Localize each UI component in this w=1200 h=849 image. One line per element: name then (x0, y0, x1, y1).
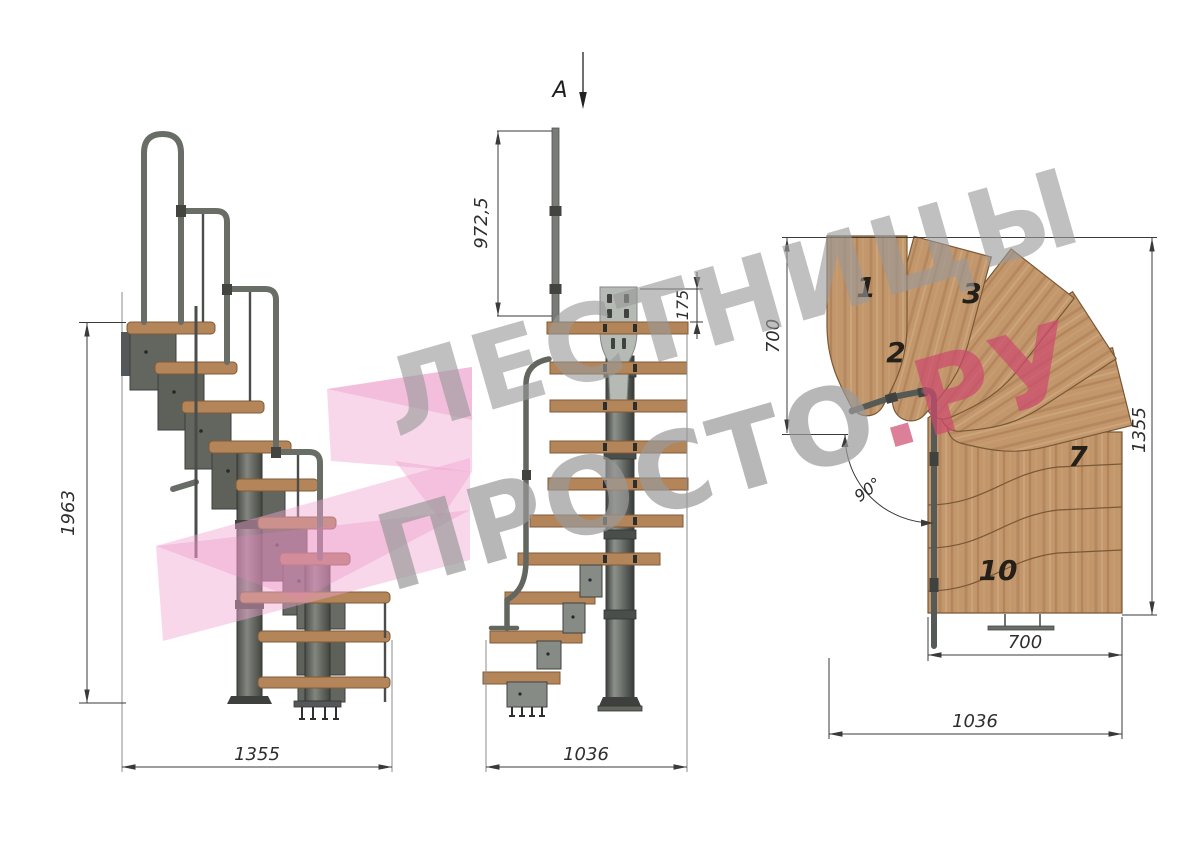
dim-total-height: 1963 (58, 490, 79, 536)
dim-handrail-post-height: 972,5 (471, 197, 492, 249)
plan-base-plate (988, 626, 1054, 630)
dim-front-width: 1036 (563, 744, 609, 765)
tread-number-10: 10 (979, 554, 1018, 587)
anchor-bolts (299, 707, 339, 720)
technical-drawing-page: 1963 1355 A (0, 0, 1200, 849)
section-label: A (550, 78, 567, 103)
front-anchor-bolts (509, 707, 545, 717)
staircase-drawing: 1963 1355 A (0, 0, 1200, 849)
section-arrow (579, 52, 587, 109)
dim-overall-depth: 1355 (1129, 407, 1150, 453)
tread-number-7: 7 (1068, 440, 1088, 473)
dim-total-run: 1355 (234, 744, 280, 765)
dim-lower-flight-width: 700 (1008, 632, 1042, 653)
dim-overall-width: 1036 (952, 711, 998, 732)
